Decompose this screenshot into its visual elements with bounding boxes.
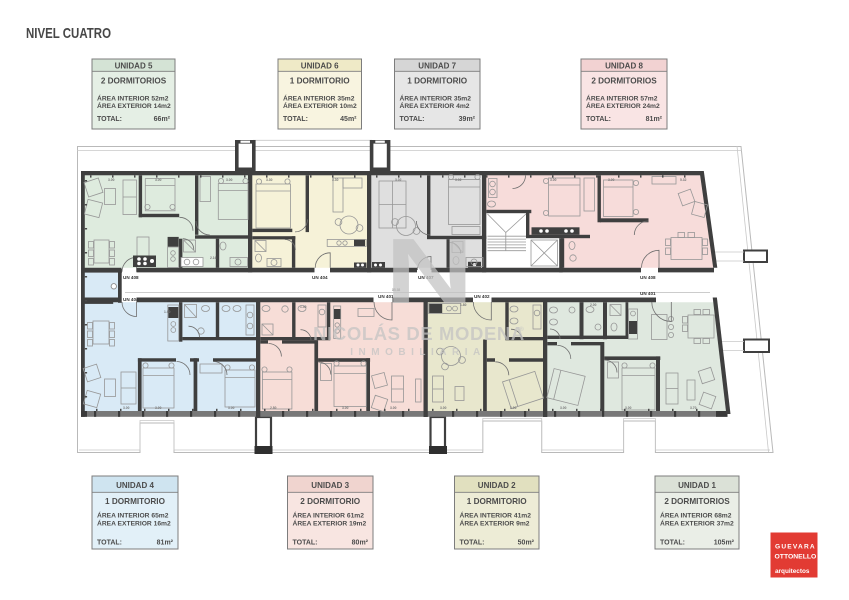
svg-text:TOTAL:: TOTAL:	[283, 116, 308, 123]
svg-text:TOTAL:: TOTAL:	[400, 116, 425, 123]
svg-text:NIVEL CUATRO: NIVEL CUATRO	[26, 25, 111, 42]
svg-text:66m²: 66m²	[154, 116, 171, 123]
svg-text:50m²: 50m²	[518, 540, 535, 547]
svg-text:3.00: 3.00	[440, 406, 447, 410]
svg-text:3.00: 3.00	[608, 178, 615, 182]
svg-text:ÁREA INTERIOR 35m2: ÁREA INTERIOR 35m2	[283, 93, 355, 102]
svg-text:1 DORMITORIO: 1 DORMITORIO	[105, 497, 166, 506]
svg-text:N: N	[385, 219, 474, 323]
svg-text:UN 404: UN 404	[123, 297, 139, 302]
svg-text:2.00: 2.00	[590, 303, 597, 307]
svg-text:3.00: 3.00	[560, 406, 567, 410]
svg-text:ÁREA INTERIOR 41m2: ÁREA INTERIOR 41m2	[460, 511, 532, 520]
svg-text:ÁREA EXTERIOR 9m2: ÁREA EXTERIOR 9m2	[460, 518, 530, 527]
svg-text:2 DORMITORIOS: 2 DORMITORIOS	[591, 77, 657, 86]
svg-text:ÁREA INTERIOR 61m2: ÁREA INTERIOR 61m2	[293, 511, 365, 520]
svg-text:105m²: 105m²	[714, 540, 735, 547]
svg-text:3.02: 3.02	[395, 178, 402, 182]
svg-text:ÁREA EXTERIOR 24m2: ÁREA EXTERIOR 24m2	[586, 101, 660, 110]
svg-text:ÁREA EXTERIOR 37m2: ÁREA EXTERIOR 37m2	[660, 518, 734, 527]
svg-text:3.00: 3.00	[625, 406, 632, 410]
svg-text:UNIDAD 4: UNIDAD 4	[116, 481, 154, 490]
svg-text:GUEVARA: GUEVARA	[775, 544, 816, 551]
svg-text:2 DORMITORIOS: 2 DORMITORIOS	[664, 497, 730, 506]
svg-text:3.00: 3.00	[550, 178, 557, 182]
svg-text:ÁREA INTERIOR 65m2: ÁREA INTERIOR 65m2	[97, 511, 169, 520]
svg-text:ÁREA INTERIOR 52m2: ÁREA INTERIOR 52m2	[97, 93, 169, 102]
svg-text:3.00: 3.00	[155, 178, 162, 182]
svg-text:3.30: 3.30	[332, 178, 339, 182]
svg-text:2.16: 2.16	[210, 256, 217, 260]
svg-text:5.32: 5.32	[680, 178, 687, 182]
svg-text:UNIDAD 3: UNIDAD 3	[311, 481, 349, 490]
svg-text:ÁREA INTERIOR 57m2: ÁREA INTERIOR 57m2	[586, 93, 658, 102]
svg-text:80m²: 80m²	[352, 540, 369, 547]
svg-text:UN 404: UN 404	[312, 275, 328, 280]
svg-text:UNIDAD 7: UNIDAD 7	[418, 62, 456, 71]
svg-text:3.00: 3.00	[226, 178, 233, 182]
svg-text:3.30: 3.30	[266, 178, 273, 182]
svg-text:ÁREA INTERIOR 35m2: ÁREA INTERIOR 35m2	[400, 93, 472, 102]
svg-text:OTTONELLO: OTTONELLO	[775, 554, 817, 561]
svg-text:39m²: 39m²	[459, 116, 476, 123]
svg-text:INMOBILIARIA: INMOBILIARIA	[350, 347, 485, 358]
svg-text:UN 402: UN 402	[474, 294, 490, 299]
svg-text:3.00: 3.00	[390, 406, 397, 410]
svg-text:3.00: 3.00	[155, 406, 162, 410]
svg-text:1 DORMITORIO: 1 DORMITORIO	[407, 77, 468, 86]
svg-text:UN 408: UN 408	[123, 275, 139, 280]
svg-text:3.00: 3.00	[123, 406, 130, 410]
svg-text:TOTAL:: TOTAL:	[660, 540, 685, 547]
svg-text:3.00: 3.00	[228, 406, 235, 410]
svg-text:TOTAL:: TOTAL:	[586, 116, 611, 123]
svg-text:81m²: 81m²	[157, 540, 174, 547]
svg-text:2 DORMITORIO: 2 DORMITORIO	[300, 497, 361, 506]
svg-text:2 DORMITORIOS: 2 DORMITORIOS	[101, 77, 167, 86]
svg-text:UN 401: UN 401	[640, 291, 656, 296]
svg-text:ÁREA INTERIOR 68m2: ÁREA INTERIOR 68m2	[660, 511, 732, 520]
svg-text:1 DORMITORIO: 1 DORMITORIO	[467, 497, 528, 506]
svg-text:ÁREA EXTERIOR 4m2: ÁREA EXTERIOR 4m2	[400, 101, 470, 110]
svg-text:TOTAL:: TOTAL:	[97, 540, 122, 547]
svg-text:3.00: 3.00	[510, 406, 517, 410]
svg-text:UNIDAD 8: UNIDAD 8	[605, 62, 643, 71]
svg-text:UNIDAD 2: UNIDAD 2	[478, 481, 516, 490]
svg-text:2.80: 2.80	[270, 406, 277, 410]
svg-text:UN 408: UN 408	[640, 275, 656, 280]
svg-text:ÁREA EXTERIOR 16m2: ÁREA EXTERIOR 16m2	[97, 518, 171, 527]
svg-text:UNIDAD 5: UNIDAD 5	[115, 62, 153, 71]
svg-text:1 DORMITORIO: 1 DORMITORIO	[290, 77, 351, 86]
svg-text:UNIDAD 1: UNIDAD 1	[678, 481, 716, 490]
svg-text:TOTAL:: TOTAL:	[97, 116, 122, 123]
svg-text:ÁREA EXTERIOR 10m2: ÁREA EXTERIOR 10m2	[283, 101, 357, 110]
svg-text:ÁREA EXTERIOR 19m2: ÁREA EXTERIOR 19m2	[293, 518, 367, 527]
svg-text:1.90: 1.90	[164, 310, 171, 314]
svg-text:®: ®	[519, 325, 524, 333]
svg-text:3.00: 3.00	[342, 406, 349, 410]
svg-text:45m²: 45m²	[340, 116, 357, 123]
svg-text:3.70: 3.70	[690, 406, 697, 410]
svg-text:UNIDAD 6: UNIDAD 6	[301, 62, 339, 71]
svg-text:TOTAL:: TOTAL:	[293, 540, 318, 547]
svg-text:ÁREA EXTERIOR 14m2: ÁREA EXTERIOR 14m2	[97, 101, 171, 110]
svg-text:81m²: 81m²	[646, 116, 663, 123]
svg-text:TOTAL:: TOTAL:	[460, 540, 485, 547]
svg-text:arquitectos: arquitectos	[775, 568, 810, 575]
svg-text:3.00: 3.00	[108, 178, 115, 182]
svg-text:3.02: 3.02	[455, 178, 462, 182]
svg-text:NICOLÁS DE MODENA: NICOLÁS DE MODENA	[313, 323, 525, 344]
svg-text:1.40: 1.40	[300, 305, 307, 309]
